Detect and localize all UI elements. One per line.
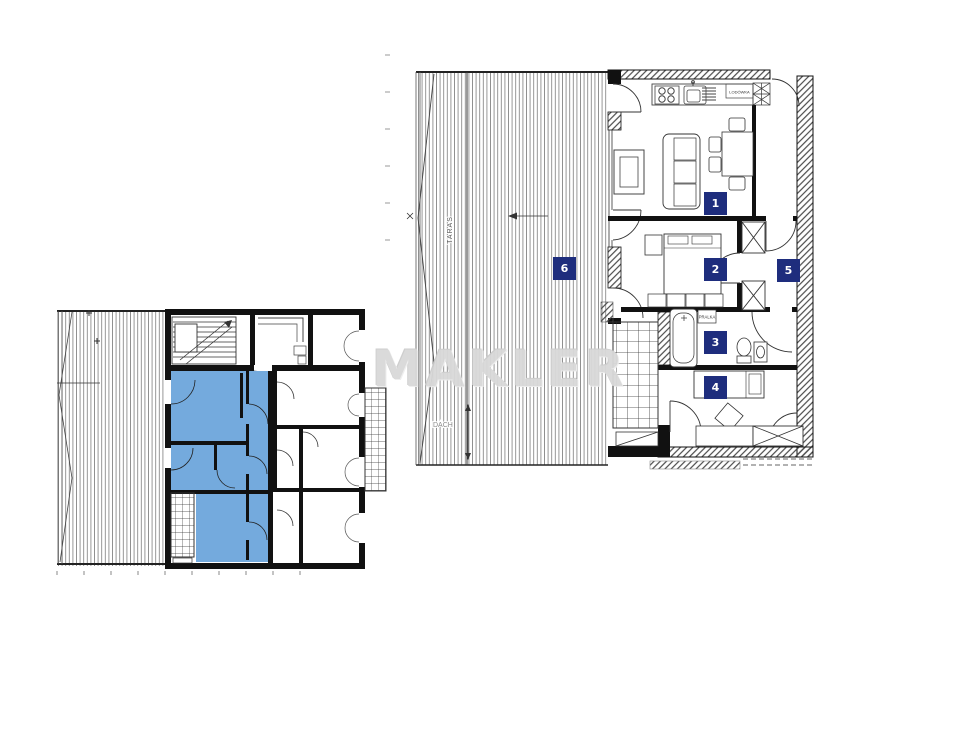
desk [696,426,753,446]
room-badge-2: 2 [704,258,727,281]
dimension-ticks-column [385,55,390,240]
roof-label: DACH [433,422,453,429]
room-badge-3: 3 [704,331,727,354]
balcony-grid [365,388,386,491]
terrace-label: TARAS [447,216,454,244]
room-badge-6: 6 [553,257,576,280]
overview-dimension-ticks [57,571,300,575]
detail-terrace: TARAS DACH [407,72,608,465]
fridge-label: LODÓWKA [729,90,750,95]
floorplan-canvas: TARAS DACH [0,0,980,735]
toilet-icon [737,338,751,363]
watermark-text: MAKLER [372,340,628,398]
bath-sink-icon [754,342,767,362]
detail-plan: TARAS DACH [385,55,815,469]
glass-block-small [171,493,194,563]
room-badge-1: 1 [704,192,727,215]
overview-terrace [57,310,165,566]
nightstand [645,235,662,255]
overview-plan [57,309,386,575]
washer-label: PRALKA [699,315,716,320]
room-badge-5: 5 [777,259,800,282]
room-badge-4: 4 [704,376,727,399]
